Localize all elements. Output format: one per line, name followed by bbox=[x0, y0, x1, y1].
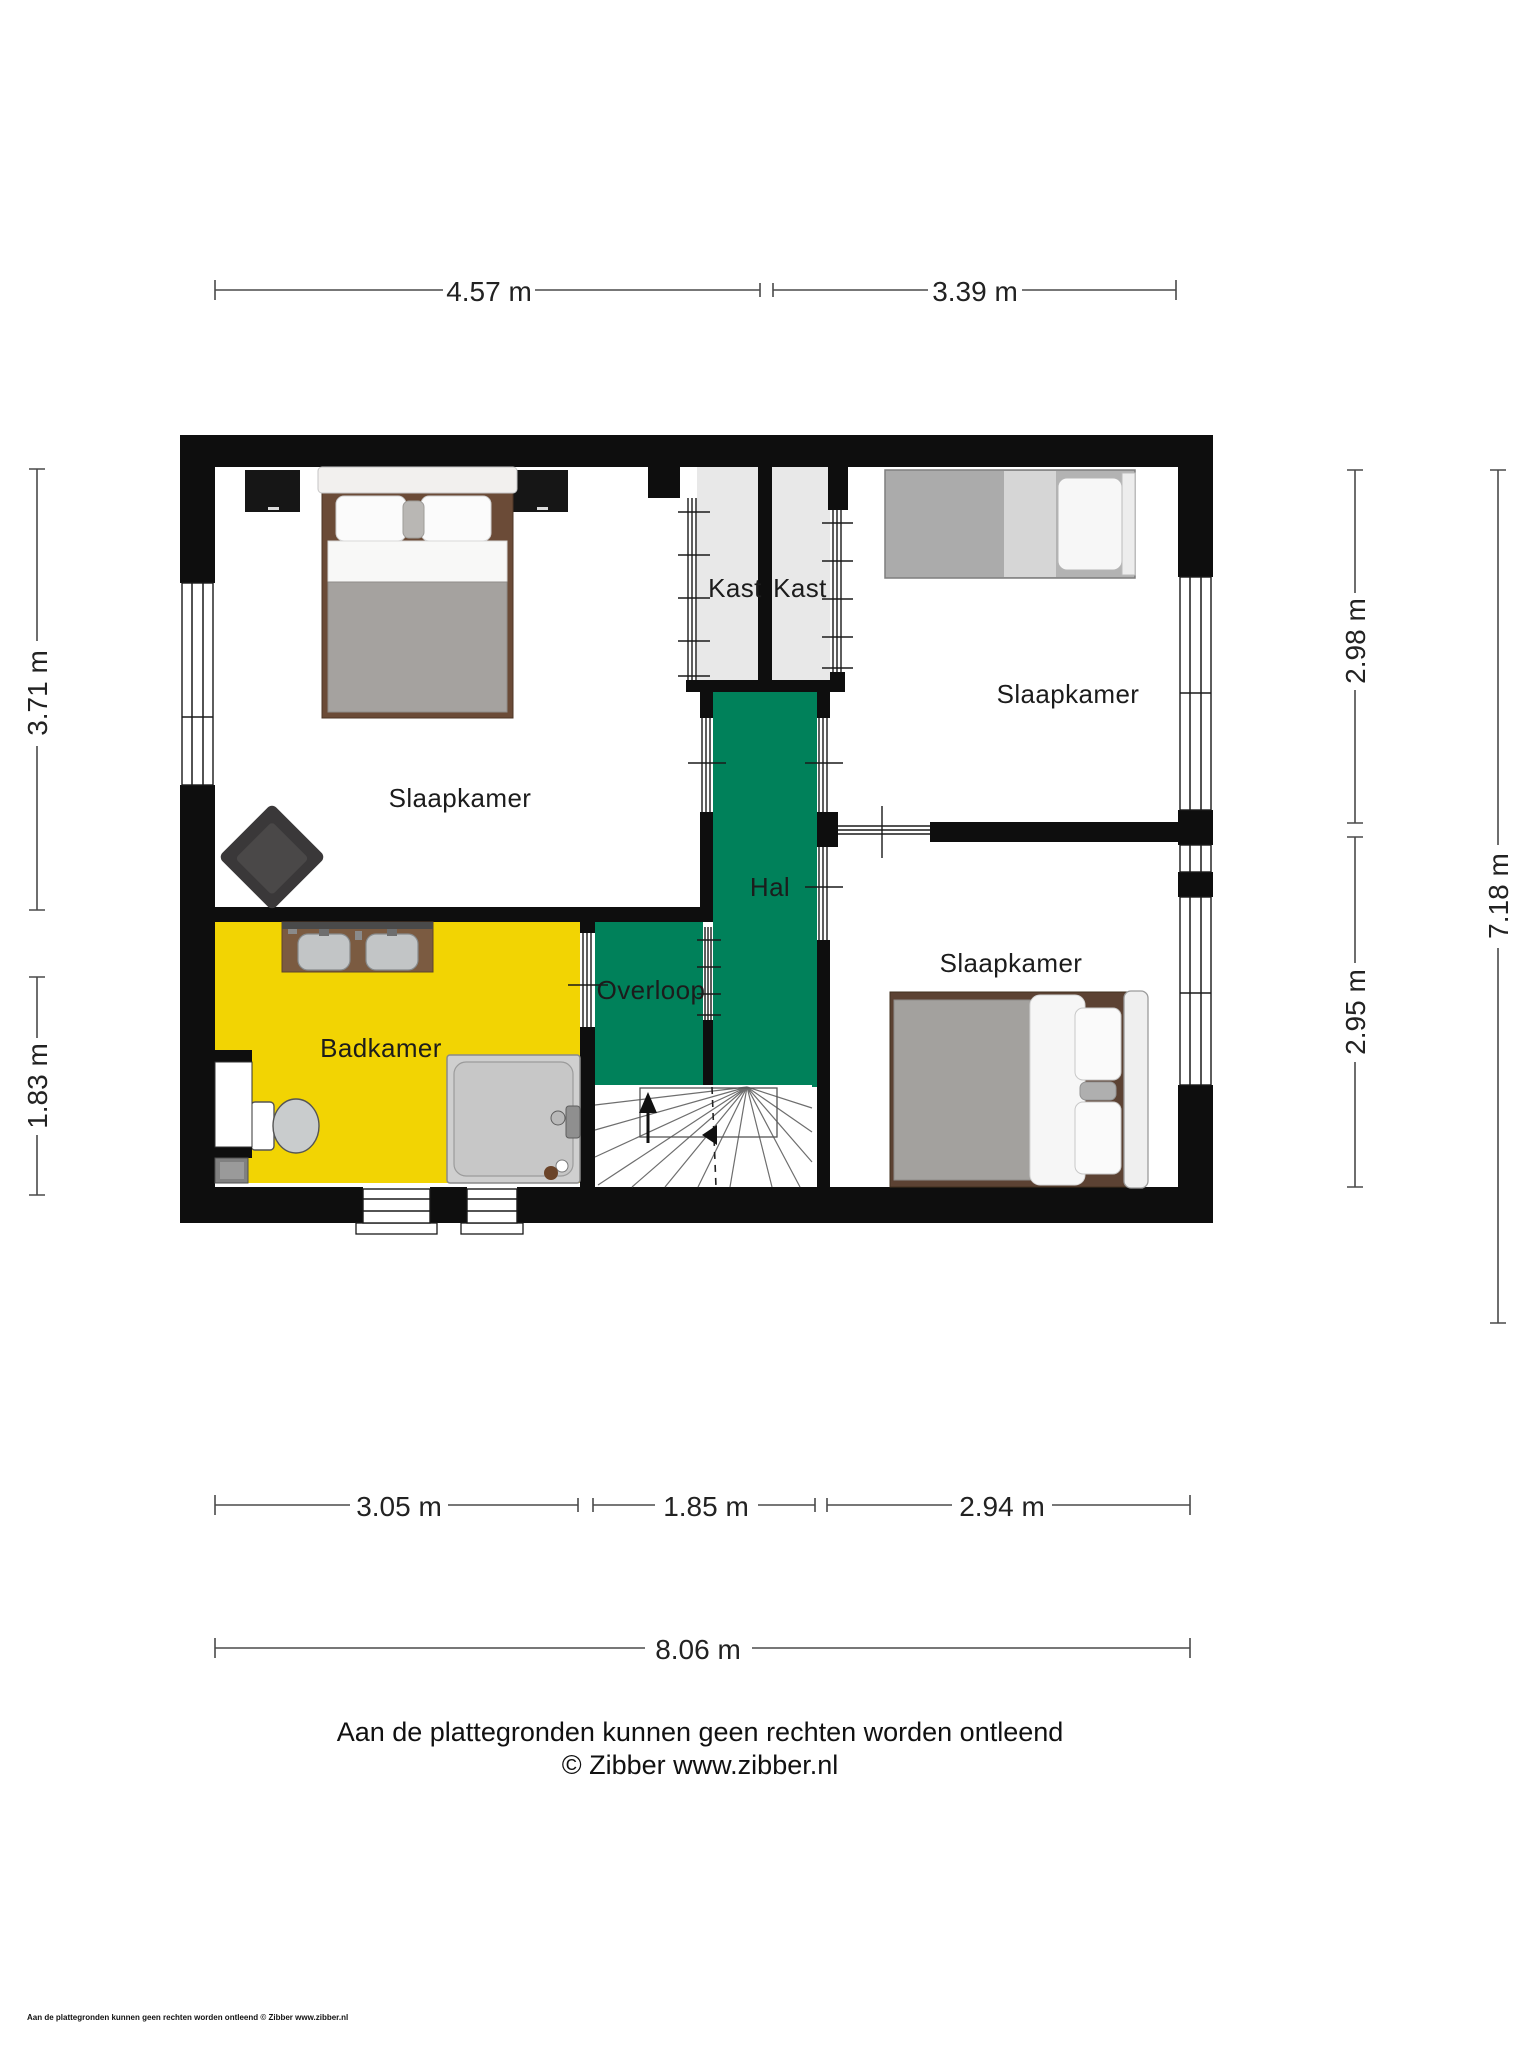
window-right-small bbox=[1180, 845, 1211, 872]
sink bbox=[366, 934, 418, 970]
bed-pillow bbox=[1058, 478, 1122, 570]
dim-left-2: 1.83 m bbox=[22, 1043, 53, 1129]
window-frame bbox=[1180, 845, 1211, 872]
dim-right-1: 2.98 m bbox=[1340, 598, 1371, 684]
window-right-low bbox=[1180, 897, 1211, 1085]
shower bbox=[447, 1055, 580, 1183]
window-bottom-right bbox=[461, 1189, 523, 1234]
bed-pillow bbox=[421, 496, 491, 541]
wall-top bbox=[180, 435, 1213, 467]
dim-top-1: 4.57 m bbox=[446, 276, 532, 307]
label-bedroom-bottom-right: Slaapkamer bbox=[940, 948, 1083, 978]
dim-top-lines bbox=[215, 280, 1176, 300]
wall-landing-hall-stub bbox=[703, 1020, 713, 1085]
sink bbox=[298, 934, 350, 970]
wall-hall-left-2 bbox=[700, 812, 713, 922]
wall-hall-left-1 bbox=[700, 692, 713, 718]
footer-watermark: Aan de plattegronden kunnen geen rechten… bbox=[27, 2013, 348, 2022]
footer-credit: © Zibber www.zibber.nl bbox=[562, 1750, 839, 1780]
wall-hall-right-3 bbox=[817, 940, 830, 1187]
bed-pillow bbox=[1075, 1008, 1121, 1080]
niche-stub-top bbox=[215, 1050, 252, 1062]
wall-bathroom-divider-bottom bbox=[580, 1027, 595, 1187]
window-frame bbox=[182, 583, 213, 785]
wall-bathroom-divider-top bbox=[580, 922, 595, 933]
dim-right-total: 7.18 m bbox=[1483, 853, 1514, 939]
faucet bbox=[319, 929, 329, 936]
nightstand-left bbox=[245, 470, 300, 512]
window-frame bbox=[1180, 897, 1211, 1085]
soap-dish bbox=[355, 931, 362, 940]
wall-hall-right-1 bbox=[817, 692, 830, 718]
wall-right-junction bbox=[1178, 810, 1213, 845]
wall-closet-right-jamb bbox=[828, 467, 848, 510]
nightstand-right bbox=[513, 470, 568, 512]
window-right-top bbox=[1180, 577, 1211, 810]
toilet-tank bbox=[251, 1102, 274, 1150]
dim-right-2: 2.95 m bbox=[1340, 969, 1371, 1055]
wall-closet-left-jamb bbox=[648, 467, 680, 498]
bed-double-bottom-right bbox=[890, 991, 1148, 1188]
bed-duvet bbox=[886, 471, 1004, 577]
footer-disclaimer: Aan de plattegronden kunnen geen rechten… bbox=[337, 1717, 1064, 1747]
bed-sheet-fold bbox=[328, 541, 507, 586]
label-bedroom-top-right: Slaapkamer bbox=[997, 679, 1140, 709]
wall-bathroom-top bbox=[215, 907, 713, 922]
wall-right-upper bbox=[1178, 435, 1213, 577]
wall-bottom-1 bbox=[180, 1187, 363, 1223]
vanity-backsplash bbox=[282, 922, 433, 929]
bed-headboard bbox=[1124, 991, 1148, 1188]
label-closet-right: Kast bbox=[773, 573, 827, 603]
wall-hall-right-2 bbox=[817, 812, 838, 847]
floor-plan-canvas: Slaapkamer Kast Kast Slaapkamer Hal Over… bbox=[0, 0, 1536, 2048]
window-frame bbox=[467, 1189, 517, 1223]
window-sill bbox=[461, 1223, 523, 1234]
label-bedroom-left: Slaapkamer bbox=[389, 783, 532, 813]
soap-dish bbox=[288, 929, 297, 934]
wall-left-lower bbox=[180, 785, 215, 1223]
shower-accessory bbox=[544, 1166, 558, 1180]
bed-pillow-small bbox=[403, 501, 424, 538]
window-left bbox=[182, 583, 213, 785]
wall-bedroom-divider bbox=[930, 822, 1178, 842]
wall-bottom-3 bbox=[517, 1187, 1213, 1223]
dim-top-2: 3.39 m bbox=[932, 276, 1018, 307]
dim-bottom-3: 2.94 m bbox=[959, 1491, 1045, 1522]
bed-duvet bbox=[328, 582, 507, 712]
dim-bottom-total: 8.06 m bbox=[655, 1634, 741, 1665]
shower-drain bbox=[556, 1160, 568, 1172]
wall-left-upper bbox=[180, 435, 215, 583]
dim-bottom-1: 3.05 m bbox=[356, 1491, 442, 1522]
wall-bottom-2 bbox=[430, 1187, 467, 1223]
label-closet-left: Kast bbox=[708, 573, 762, 603]
label-landing: Overloop bbox=[597, 975, 706, 1005]
nightstand-handle bbox=[537, 507, 548, 510]
toilet-bowl bbox=[273, 1099, 319, 1153]
bed-pillow bbox=[1075, 1102, 1121, 1174]
nightstand-handle bbox=[268, 507, 279, 510]
stairs bbox=[595, 1085, 812, 1187]
label-bathroom: Badkamer bbox=[320, 1033, 442, 1063]
bed-headboard bbox=[318, 467, 517, 493]
wall-niche bbox=[215, 1062, 252, 1147]
bed-sheet-fold bbox=[1004, 471, 1056, 577]
dim-left-1: 3.71 m bbox=[22, 650, 53, 736]
shower-valve bbox=[551, 1111, 565, 1125]
bed-pillow-small bbox=[1080, 1082, 1116, 1100]
niche-stub-bottom bbox=[215, 1147, 252, 1158]
bed-pillow bbox=[336, 496, 406, 541]
wall-closet-bottom bbox=[686, 680, 845, 692]
faucet bbox=[387, 929, 397, 936]
label-hall: Hal bbox=[750, 872, 790, 902]
wall-right-block bbox=[1178, 872, 1213, 897]
bathroom-cabinet-top bbox=[220, 1162, 244, 1179]
bed-single-top-right bbox=[885, 470, 1135, 578]
bed-footboard bbox=[1122, 473, 1135, 575]
window-sill bbox=[356, 1223, 437, 1234]
window-frame bbox=[363, 1189, 430, 1223]
shower-mixer bbox=[566, 1106, 580, 1138]
footer: Aan de plattegronden kunnen geen rechten… bbox=[27, 1717, 1063, 2022]
window-bottom-left bbox=[356, 1189, 437, 1234]
dim-bottom-2: 1.85 m bbox=[663, 1491, 749, 1522]
